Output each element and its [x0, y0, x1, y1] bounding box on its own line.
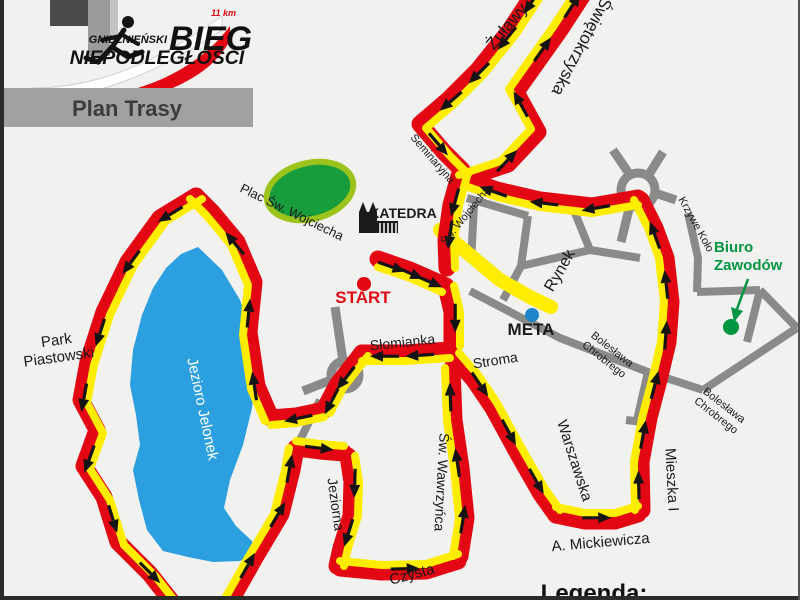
route-map-page: ŻuławyŚwiętokrzyskaSeminaryjnaŚw. Wojcie…	[0, 0, 800, 600]
map-label-katedra: KATEDRA	[369, 205, 436, 221]
gray-road	[697, 290, 760, 292]
map-label-biuro-zawodow: BiuroZawodów	[714, 239, 783, 274]
route-yellow-czysta	[340, 554, 458, 565]
plan-trasy-banner: Plan Trasy	[0, 88, 253, 127]
roundabout-arm	[648, 152, 663, 176]
biuro-dot	[723, 319, 739, 335]
map-label-meta: META	[508, 320, 555, 339]
map-label-warszawska: Warszawska	[553, 418, 595, 504]
logo-city: GNIEŹNIEŃSKI	[89, 33, 168, 46]
roundabout-arm	[655, 193, 676, 200]
map-label-start: START	[335, 288, 391, 307]
gray-road	[575, 213, 590, 250]
gray-road	[747, 290, 760, 342]
map-label-boleslawa-1: BolesławaChrobrego	[580, 329, 636, 381]
map-label-mieszka: Mieszka I	[661, 448, 681, 512]
route-red-stroma-down	[446, 286, 452, 346]
gray-road	[760, 290, 797, 328]
route-yellow-jeziorna-east	[296, 441, 344, 446]
logo-niepodleglosci: NIEPODLEGŁOŚCI	[70, 46, 245, 69]
roundabout-arm	[335, 307, 343, 361]
logo-tower-dark	[50, 0, 88, 26]
banner-title: Plan Trasy	[72, 96, 183, 121]
route-yellow-slomianka	[362, 358, 450, 361]
route-yellow-mickiewicza	[556, 506, 638, 513]
map-label-stroma: Stroma	[472, 349, 519, 372]
map-label-wawrzynca: Św. Wawrzyńca	[431, 433, 453, 532]
roundabout-arm	[613, 150, 630, 175]
gray-road	[521, 216, 528, 266]
route-red-swietokrzyska	[466, 0, 590, 178]
route-map: ŻuławyŚwiętokrzyskaSeminaryjnaŚw. Wojcie…	[0, 0, 800, 600]
map-label-rynek: Rynek	[541, 246, 579, 295]
map-label-mickiewicza: A. Mickiewicza	[551, 530, 651, 556]
logo-distance: 11 km	[211, 8, 236, 18]
gray-road	[590, 250, 640, 258]
